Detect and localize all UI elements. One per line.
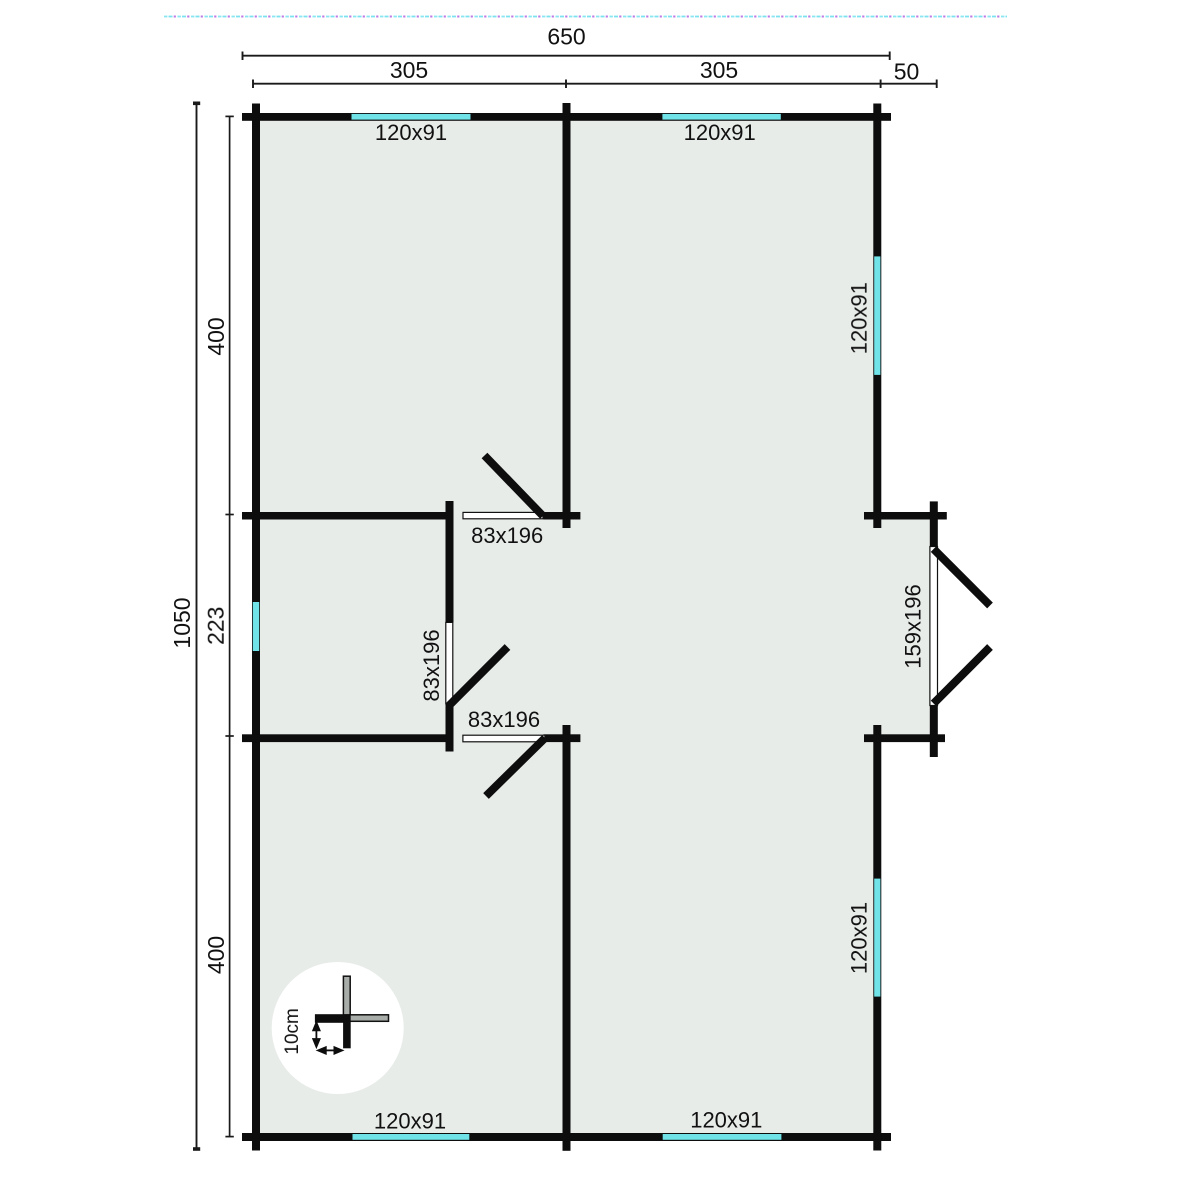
- svg-text:120x91: 120x91: [374, 1108, 446, 1133]
- svg-text:83x196: 83x196: [419, 629, 444, 701]
- svg-text:120x91: 120x91: [684, 120, 756, 145]
- svg-text:120x91: 120x91: [847, 902, 872, 974]
- svg-text:120x91: 120x91: [847, 282, 872, 354]
- svg-text:400: 400: [203, 317, 229, 355]
- svg-text:10cm: 10cm: [282, 1008, 303, 1054]
- svg-text:83x196: 83x196: [468, 707, 540, 732]
- svg-text:1050: 1050: [169, 597, 195, 648]
- svg-text:83x196: 83x196: [471, 523, 543, 548]
- svg-text:223: 223: [203, 607, 229, 645]
- svg-text:159x196: 159x196: [901, 584, 926, 668]
- svg-text:120x91: 120x91: [690, 1108, 762, 1133]
- svg-text:305: 305: [390, 57, 428, 83]
- svg-text:400: 400: [203, 936, 229, 974]
- svg-text:120x91: 120x91: [375, 120, 447, 145]
- svg-text:305: 305: [700, 57, 738, 83]
- svg-text:650: 650: [547, 24, 585, 50]
- svg-text:50: 50: [894, 59, 920, 85]
